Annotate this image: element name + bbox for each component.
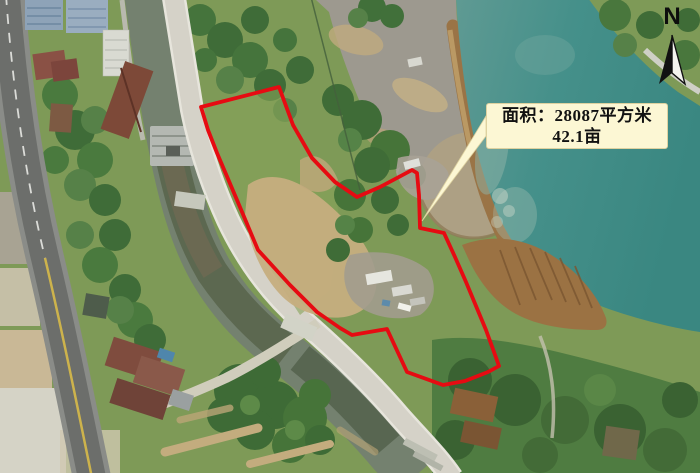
aerial-map: 面积：28087平方米 42.1亩 N xyxy=(0,0,700,473)
north-arrow-icon xyxy=(654,30,690,88)
area-label-line2: 42.1亩 xyxy=(552,126,601,147)
north-label: N xyxy=(650,4,694,30)
north-indicator: N xyxy=(650,4,694,90)
area-label: 面积：28087平方米 42.1亩 xyxy=(486,103,668,149)
area-label-line1: 面积：28087平方米 xyxy=(502,105,652,126)
aerial-photo xyxy=(0,0,700,473)
